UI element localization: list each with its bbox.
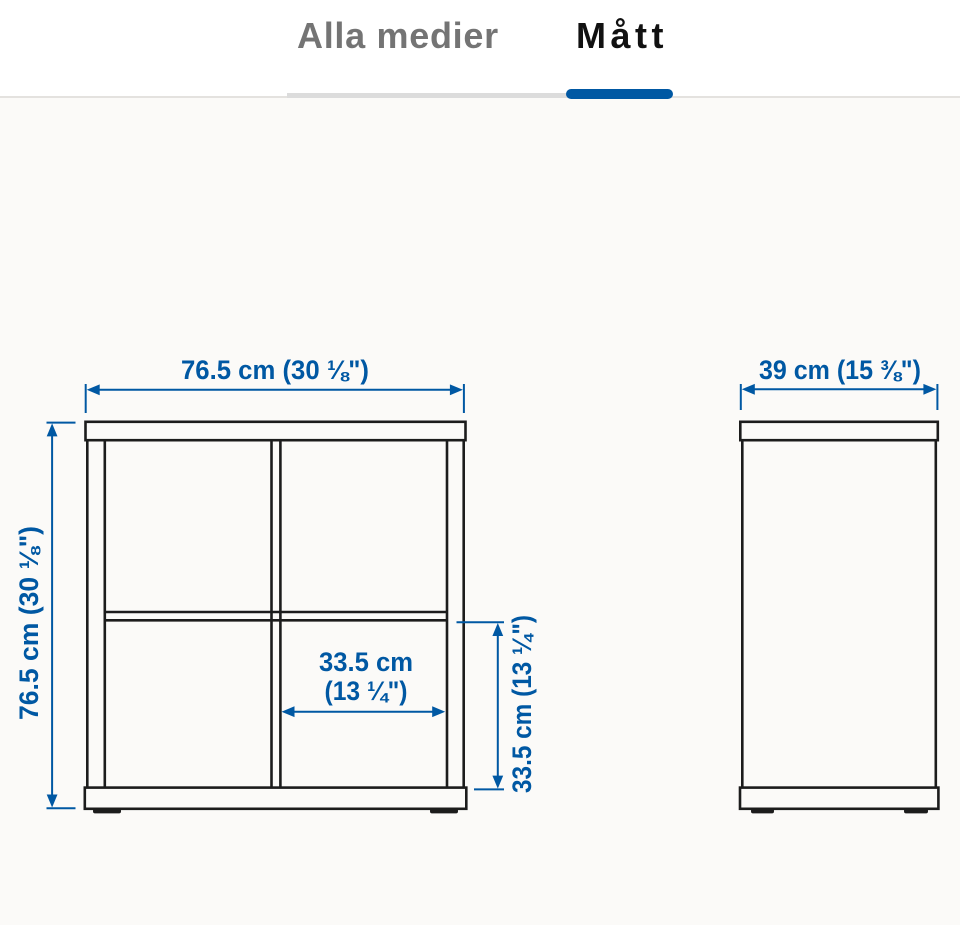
svg-text:76.5 cm (30 ⅛"): 76.5 cm (30 ⅛") (14, 526, 44, 720)
svg-text:33.5 cm (13 ¼"): 33.5 cm (13 ¼") (507, 615, 537, 793)
svg-text:76.5 cm (30 ⅛"): 76.5 cm (30 ⅛") (181, 355, 369, 385)
svg-text:33.5 cm: 33.5 cm (319, 647, 413, 677)
svg-text:39 cm (15 ⅜"): 39 cm (15 ⅜") (759, 355, 921, 385)
svg-text:(13 ¼"): (13 ¼") (325, 676, 408, 706)
